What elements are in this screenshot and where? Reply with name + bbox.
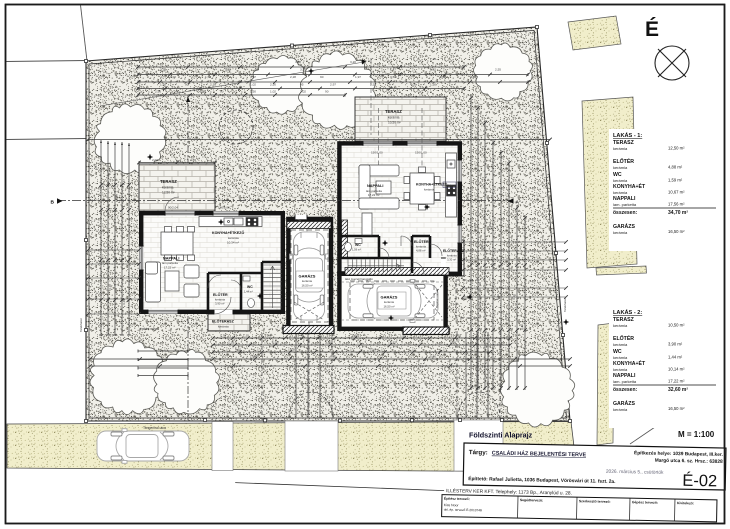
svg-text:2,30: 2,30 xyxy=(325,341,331,345)
svg-text:KONYHA+ÉT: KONYHA+ÉT xyxy=(613,359,646,367)
svg-text:ELŐTÉR: ELŐTÉR xyxy=(613,157,634,165)
svg-text:2,02: 2,02 xyxy=(300,90,306,94)
svg-text:Telekhatár: Telekhatár xyxy=(563,298,567,312)
svg-text:Gépész tervező:: Gépész tervező: xyxy=(632,500,658,504)
svg-text:2,55: 2,55 xyxy=(495,68,501,72)
svg-text:építési vonal: építési vonal xyxy=(140,327,158,331)
svg-text:lakó övezeti hanggátló: lakó övezeti hanggátló xyxy=(345,277,373,281)
svg-text:kerámia: kerámia xyxy=(424,187,435,191)
svg-text:1,47: 1,47 xyxy=(115,194,119,200)
svg-text:GARÁZS: GARÁZS xyxy=(299,274,316,279)
svg-text:1,47: 1,47 xyxy=(94,164,98,170)
svg-text:2,50: 2,50 xyxy=(272,341,278,345)
svg-text:14,30: 14,30 xyxy=(466,192,470,200)
svg-text:1,98: 1,98 xyxy=(488,224,492,230)
svg-text:B: B xyxy=(51,200,55,206)
svg-text:Bejárat vonala: Bejárat vonala xyxy=(435,288,439,308)
svg-text:2,50: 2,50 xyxy=(352,334,358,338)
svg-text:16,50 m²: 16,50 m² xyxy=(668,229,685,234)
svg-text:3,30 m²: 3,30 m² xyxy=(447,258,456,262)
svg-text:M = 1:100: M = 1:100 xyxy=(678,430,715,439)
svg-text:1,50: 1,50 xyxy=(250,90,256,94)
svg-text:16,50 m²: 16,50 m² xyxy=(302,283,313,287)
svg-text:kerámia: kerámia xyxy=(162,186,174,190)
svg-text:lam. parketta: lam. parketta xyxy=(613,202,637,207)
svg-text:É: É xyxy=(645,18,659,41)
svg-text:lam. parketta: lam. parketta xyxy=(613,379,637,384)
svg-text:KONYHA+ÉT: KONYHA+ÉT xyxy=(613,182,646,190)
svg-text:3,90 m²: 3,90 m² xyxy=(215,302,225,306)
svg-text:Építész tervező:: Építész tervező: xyxy=(444,496,470,501)
svg-text:2,04: 2,04 xyxy=(152,158,158,162)
svg-text:5,00: 5,00 xyxy=(430,355,436,359)
svg-text:NAPPALI: NAPPALI xyxy=(367,184,383,188)
svg-text:Tengerihal utca: Tengerihal utca xyxy=(143,426,166,430)
svg-text:É-02: É-02 xyxy=(682,471,717,491)
svg-text:9,10: 9,10 xyxy=(480,244,484,250)
svg-text:ELŐTÉR: ELŐTÉR xyxy=(613,334,634,342)
svg-text:WC: WC xyxy=(355,243,361,247)
svg-text:4,12: 4,12 xyxy=(108,284,112,290)
svg-text:90: 90 xyxy=(325,90,329,94)
svg-text:kerámia: kerámia xyxy=(613,323,628,328)
svg-text:Tárgy:: Tárgy: xyxy=(469,449,488,456)
svg-text:GARÁZS: GARÁZS xyxy=(381,295,398,300)
svg-text:2,50: 2,50 xyxy=(440,75,446,79)
svg-text:150/1,00: 150/1,00 xyxy=(415,151,427,155)
svg-text:kerámia: kerámia xyxy=(613,407,628,412)
svg-text:1,47: 1,47 xyxy=(108,169,112,175)
svg-text:LAKÁS - 1:: LAKÁS - 1: xyxy=(613,132,642,139)
svg-text:1,59 m²: 1,59 m² xyxy=(352,248,361,252)
svg-text:1,35: 1,35 xyxy=(243,334,249,338)
svg-text:1,70: 1,70 xyxy=(220,334,226,338)
svg-text:ELŐTÉR: ELŐTÉR xyxy=(414,239,429,244)
svg-text:ELŐTÉR: ELŐTÉR xyxy=(213,292,228,297)
svg-text:2026. március 5., csütörtök: 2026. március 5., csütörtök xyxy=(606,469,664,476)
svg-text:2,97: 2,97 xyxy=(330,83,336,87)
svg-text:1,50: 1,50 xyxy=(430,83,436,87)
svg-text:10,14 m²: 10,14 m² xyxy=(668,367,685,372)
svg-text:12,50 m²: 12,50 m² xyxy=(668,146,685,151)
svg-text:5,47: 5,47 xyxy=(94,294,98,300)
svg-text:2,28: 2,28 xyxy=(290,75,296,79)
svg-text:4,97: 4,97 xyxy=(250,75,256,79)
svg-text:90: 90 xyxy=(268,334,272,338)
svg-text:kerámia: kerámia xyxy=(447,254,457,258)
svg-text:összesen:: összesen: xyxy=(613,387,638,393)
svg-text:3,50: 3,50 xyxy=(300,68,306,72)
svg-text:1,50: 1,50 xyxy=(205,75,211,79)
svg-text:4,08: 4,08 xyxy=(295,60,301,64)
svg-text:1,47: 1,47 xyxy=(101,184,105,190)
svg-text:4,10: 4,10 xyxy=(470,75,476,79)
svg-text:ELŐTERASZ: ELŐTERASZ xyxy=(212,319,235,324)
svg-text:1,47: 1,47 xyxy=(122,179,126,185)
svg-text:Földszinti Alaprajz: Földszinti Alaprajz xyxy=(469,431,533,440)
svg-text:4,88 m²: 4,88 m² xyxy=(416,249,426,253)
svg-text:összesen:: összesen: xyxy=(613,210,638,216)
svg-text:10,50 m²: 10,50 m² xyxy=(388,121,401,125)
svg-text:kerámia: kerámia xyxy=(613,355,628,360)
svg-text:1,97: 1,97 xyxy=(355,75,361,79)
svg-text:17,88: 17,88 xyxy=(250,355,258,359)
svg-text:90/2,04: 90/2,04 xyxy=(168,206,178,210)
svg-text:Szerkesztő tervező:: Szerkesztő tervező: xyxy=(579,499,611,504)
svg-text:3,02: 3,02 xyxy=(170,75,176,79)
svg-text:TERASZ: TERASZ xyxy=(160,179,177,184)
svg-text:2,02: 2,02 xyxy=(200,90,206,94)
svg-text:kerámia: kerámia xyxy=(613,230,628,235)
svg-text:3,20: 3,20 xyxy=(122,299,126,305)
svg-text:10,8: 10,8 xyxy=(370,348,376,352)
svg-text:5,62: 5,62 xyxy=(430,68,436,72)
svg-text:34,70 m²: 34,70 m² xyxy=(668,210,688,216)
svg-text:kerámia: kerámia xyxy=(218,325,229,329)
svg-text:10,14 m²: 10,14 m² xyxy=(444,183,455,187)
svg-text:okl. ép. tervező É-2013748: okl. ép. tervező É-2013748 xyxy=(444,507,482,513)
svg-text:4,95: 4,95 xyxy=(504,314,508,320)
svg-text:1,59 m²: 1,59 m² xyxy=(668,178,683,183)
svg-text:4,88 m²: 4,88 m² xyxy=(668,165,683,170)
svg-text:Telekhatár: Telekhatár xyxy=(79,318,83,332)
svg-text:4,02: 4,02 xyxy=(235,348,241,352)
svg-text:90: 90 xyxy=(220,90,224,94)
svg-text:12,50 m²: 12,50 m² xyxy=(162,191,175,195)
svg-text:GARÁZS: GARÁZS xyxy=(613,400,635,407)
svg-text:LAKÁS - 2:: LAKÁS - 2: xyxy=(613,309,642,316)
svg-text:3,03: 3,03 xyxy=(455,334,461,338)
svg-text:kerámia: kerámia xyxy=(613,146,628,151)
svg-text:kerámia: kerámia xyxy=(613,178,628,183)
svg-text:7,20: 7,20 xyxy=(430,57,436,61)
svg-text:k e r t i p a v i l o n: k e r t i p a v i l o n xyxy=(221,138,247,142)
svg-text:16,50 m²: 16,50 m² xyxy=(668,406,685,411)
svg-text:1,02: 1,02 xyxy=(270,90,276,94)
svg-text:2,50: 2,50 xyxy=(270,83,276,87)
svg-text:9,20: 9,20 xyxy=(520,324,524,330)
svg-text:3,90 m²: 3,90 m² xyxy=(668,342,683,347)
svg-text:90: 90 xyxy=(185,83,189,87)
svg-text:kerámia: kerámia xyxy=(228,236,239,240)
svg-text:10,34 m²: 10,34 m² xyxy=(227,241,239,245)
svg-text:2,96: 2,96 xyxy=(155,90,161,94)
svg-text:90: 90 xyxy=(320,75,324,79)
svg-text:11,53: 11,53 xyxy=(473,222,477,230)
svg-text:10,67 m²: 10,67 m² xyxy=(668,190,685,195)
svg-text:1,44 m²: 1,44 m² xyxy=(244,290,253,294)
svg-text:3,05: 3,05 xyxy=(450,341,456,345)
svg-text:10,50 m²: 10,50 m² xyxy=(668,323,685,328)
svg-text:17,56 m²: 17,56 m² xyxy=(668,202,685,207)
svg-text:150/1,00: 150/1,00 xyxy=(218,206,230,210)
svg-text:1,52: 1,52 xyxy=(390,341,396,345)
svg-text:kerámia: kerámia xyxy=(613,165,628,170)
svg-text:3,10: 3,10 xyxy=(512,294,516,300)
svg-text:1,02: 1,02 xyxy=(250,83,256,87)
svg-text:1,47: 1,47 xyxy=(390,68,396,72)
svg-text:2,39: 2,39 xyxy=(210,83,216,87)
svg-text:kerámia: kerámia xyxy=(613,190,628,195)
svg-text:5,02: 5,02 xyxy=(225,68,231,72)
svg-text:32,60 m²: 32,60 m² xyxy=(668,387,688,393)
svg-text:1,52: 1,52 xyxy=(400,334,406,338)
svg-text:90: 90 xyxy=(255,68,259,72)
svg-text:17,22 m²: 17,22 m² xyxy=(164,265,175,269)
svg-text:kerámia: kerámia xyxy=(388,116,400,120)
svg-text:Segédtervező:: Segédtervező: xyxy=(520,498,543,502)
svg-text:2,30: 2,30 xyxy=(228,341,234,345)
svg-text:GARÁZS: GARÁZS xyxy=(613,223,635,230)
svg-text:A: A xyxy=(516,200,520,206)
svg-text:KONYHA+ÉTKEZŐ: KONYHA+ÉTKEZŐ xyxy=(212,230,244,235)
svg-text:6,62: 6,62 xyxy=(330,355,336,359)
svg-text:1,44 m²: 1,44 m² xyxy=(668,355,683,360)
svg-text:45: 45 xyxy=(300,334,304,338)
svg-text:16,50 m²: 16,50 m² xyxy=(384,304,395,308)
svg-text:Kivitelező:: Kivitelező: xyxy=(677,501,694,505)
svg-text:2,28: 2,28 xyxy=(160,68,166,72)
svg-text:5,46: 5,46 xyxy=(496,294,500,300)
svg-text:17,22 m²: 17,22 m² xyxy=(368,193,379,197)
svg-text:WC: WC xyxy=(247,285,253,289)
svg-text:3,50: 3,50 xyxy=(390,75,396,79)
svg-text:kerámia: kerámia xyxy=(613,342,628,347)
svg-text:4,00: 4,00 xyxy=(461,297,467,301)
svg-text:NAPPALI: NAPPALI xyxy=(163,257,179,261)
svg-text:45: 45 xyxy=(300,83,304,87)
svg-text:TERASZ: TERASZ xyxy=(385,109,402,114)
svg-text:2,04: 2,04 xyxy=(190,158,196,162)
svg-text:ELŐTERASZ: ELŐTERASZ xyxy=(443,248,464,253)
svg-text:5,60: 5,60 xyxy=(290,348,296,352)
svg-text:17,22 m²: 17,22 m² xyxy=(668,379,685,384)
svg-text:150/1,00: 150/1,00 xyxy=(371,151,383,155)
svg-text:kerámia: kerámia xyxy=(613,367,628,372)
svg-text:1,50: 1,50 xyxy=(160,83,166,87)
svg-text:4,05: 4,05 xyxy=(410,83,416,87)
